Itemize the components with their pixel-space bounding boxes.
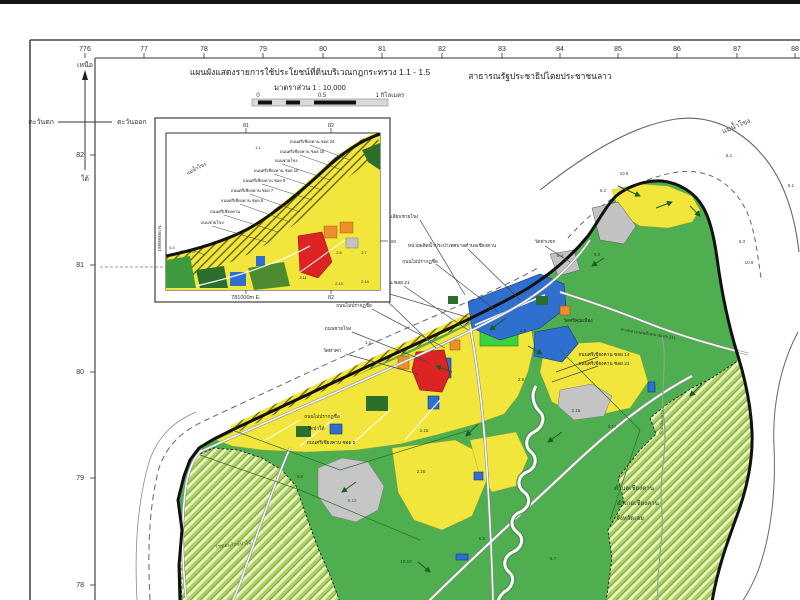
map-label: 2.9 <box>518 377 525 382</box>
map-label: วัดท่าคก <box>323 348 341 354</box>
grid-top-label: 80 <box>319 46 327 53</box>
inset-bottom-tick: 781000m E. <box>231 295 261 301</box>
map-label: ห้วยเชียงคาน <box>659 410 665 435</box>
grid-left-label: 82 <box>76 152 84 159</box>
map-label: วัดศรีคุณเมือง <box>563 317 592 324</box>
inset-bottom-tick: 82 <box>328 295 334 301</box>
map-label: ถนนศรีเชียงคาน ซอย 21 <box>578 360 630 367</box>
map-label: 6.2 <box>600 188 607 193</box>
inset-label: 2.13 <box>335 282 342 286</box>
map-canvas: 776777879808182838485868788 8281807978 เ… <box>0 0 800 600</box>
inset-right-tick: 80 <box>391 239 397 244</box>
inset-label: 2.8 <box>336 251 341 255</box>
grid-top-label: 85 <box>614 46 622 53</box>
inset-label: ถนนชายโขง <box>274 158 297 163</box>
map-label: 1.1 <box>365 340 372 345</box>
grid-left-label: 78 <box>76 582 84 589</box>
laos-country-label: สาธารณรัฐประชาธิปไตยประชาชนลาว <box>468 71 612 82</box>
scalebar-1km: 1 กิโลเมตร <box>376 91 405 99</box>
inset-label: ถนนศรีเชียงคาน ซอย 24 <box>290 139 335 144</box>
map-label: 6.1 <box>726 153 733 158</box>
grid-top-label: 79 <box>259 46 267 53</box>
map-label: 6.4 <box>557 253 564 258</box>
grid-top-label: 78 <box>200 46 208 53</box>
map-label: ถนนชายโขง <box>325 325 351 332</box>
inset-top-tick: 82 <box>328 123 334 129</box>
inset-blue-small <box>256 256 265 266</box>
compass-west-label: ตะวันตก <box>28 118 54 126</box>
grid-top-label: 86 <box>673 46 681 53</box>
inset-blue-zone <box>230 272 246 286</box>
compass-north-label: เหนือ <box>77 61 93 69</box>
compass-south-label: ใต้ <box>81 174 89 183</box>
inset-label: วัดท่าคก <box>181 250 195 254</box>
inset-label: 6.3 <box>169 246 174 250</box>
scalebar-05: 0.5 <box>318 93 327 99</box>
inset-label: 2.7 <box>361 251 366 255</box>
map-label: 6.1 <box>788 183 795 188</box>
map-sheet: 776777879808182838485868788 8281807978 เ… <box>0 0 800 600</box>
inset-orange-1 <box>324 226 337 238</box>
grid-top-label: 776 <box>79 46 91 53</box>
map-label: 2.16 <box>420 428 429 433</box>
map-label: 6.5 <box>479 536 486 541</box>
map-label: 10.10 <box>400 559 412 564</box>
map-label: 6.3 <box>739 239 746 244</box>
grid-left-label: 80 <box>76 369 84 376</box>
inset-label: ถนนศรีเชียงคาน ซอย 6 <box>221 198 264 203</box>
map-label: วัดป่าใต้ <box>307 425 324 432</box>
scale-text: มาตราส่วน 1 : 10,000 <box>274 83 346 92</box>
inset-label: ถนนศรีเชียงคาน ซอย 7 <box>231 188 274 193</box>
grid-top-label: 88 <box>791 46 799 53</box>
map-title: แผนผังแสดงรายการใช้ประโยชน์ที่ดินบริเวณก… <box>190 66 431 77</box>
map-label: 2.20 <box>417 469 426 474</box>
inset-label: 2.11 <box>299 276 306 280</box>
grid-left-label: 79 <box>76 475 84 482</box>
grid-top-label: 84 <box>556 46 564 53</box>
compass-east-label: ตะวันออก <box>117 118 147 126</box>
inset-label: 2.14 <box>361 280 368 284</box>
grid-top-label: 81 <box>378 46 386 53</box>
map-label: ถนนไม่ปรากฏชื่อ <box>304 413 340 420</box>
map-label: 2.17 <box>608 424 617 429</box>
top-black-strip <box>0 0 800 4</box>
inset-label: ถนนศรีเชียงคาน <box>210 209 240 214</box>
inset-gray-zone <box>346 238 358 248</box>
map-label: ตำบลเชียงคาน <box>614 484 655 492</box>
inset-label: ถนนศรีเชียงคาน ซอย 18 <box>280 149 325 154</box>
map-label: 5.8 <box>297 474 304 479</box>
inset-label: ถนนศรีเชียงคาน ซอย 10 <box>254 168 299 173</box>
inset-orange-2 <box>340 222 353 233</box>
inset-label: ถนนชายโขง <box>200 220 223 225</box>
map-label: จังหวัดเลย <box>616 515 644 522</box>
map-label: 10.8 <box>745 260 754 265</box>
map-label: 2.8 <box>520 328 527 333</box>
map-label: ถนนศรีเชียงคาน ซอย 5 <box>307 439 356 446</box>
grid-top-label: 77 <box>140 46 148 53</box>
map-label: 2.15 <box>572 408 581 413</box>
grid-left-label: 81 <box>76 262 84 269</box>
map-label: 10.8 <box>620 171 629 176</box>
map-label: วัดท่าแขก <box>535 239 556 245</box>
map-label: อำเภอเชียงคาน <box>617 499 660 507</box>
map-label: 6.3 <box>594 252 601 257</box>
inset-top-tick: 81 <box>243 123 249 129</box>
map-label: ถนนไม่ปรากฏชื่อ <box>402 258 438 265</box>
inset-label: 1.1 <box>255 145 261 150</box>
grid-top-label: 82 <box>438 46 446 53</box>
map-label: ถนนศรีเชียงคาน ซอย 14 <box>578 351 630 358</box>
inset-label: ถนนศรีเชียงคาน ซอย 9 <box>243 178 286 183</box>
grid-top-label: 83 <box>498 46 506 53</box>
map-label: 5.7 <box>550 556 557 561</box>
map-label: 9.13 <box>348 498 357 503</box>
map-label: ถนนไม่ปรากฏชื่อ <box>336 302 372 309</box>
grid-top-label: 87 <box>733 46 741 53</box>
inset-left-coordinate: 1980000m N. <box>157 224 162 251</box>
